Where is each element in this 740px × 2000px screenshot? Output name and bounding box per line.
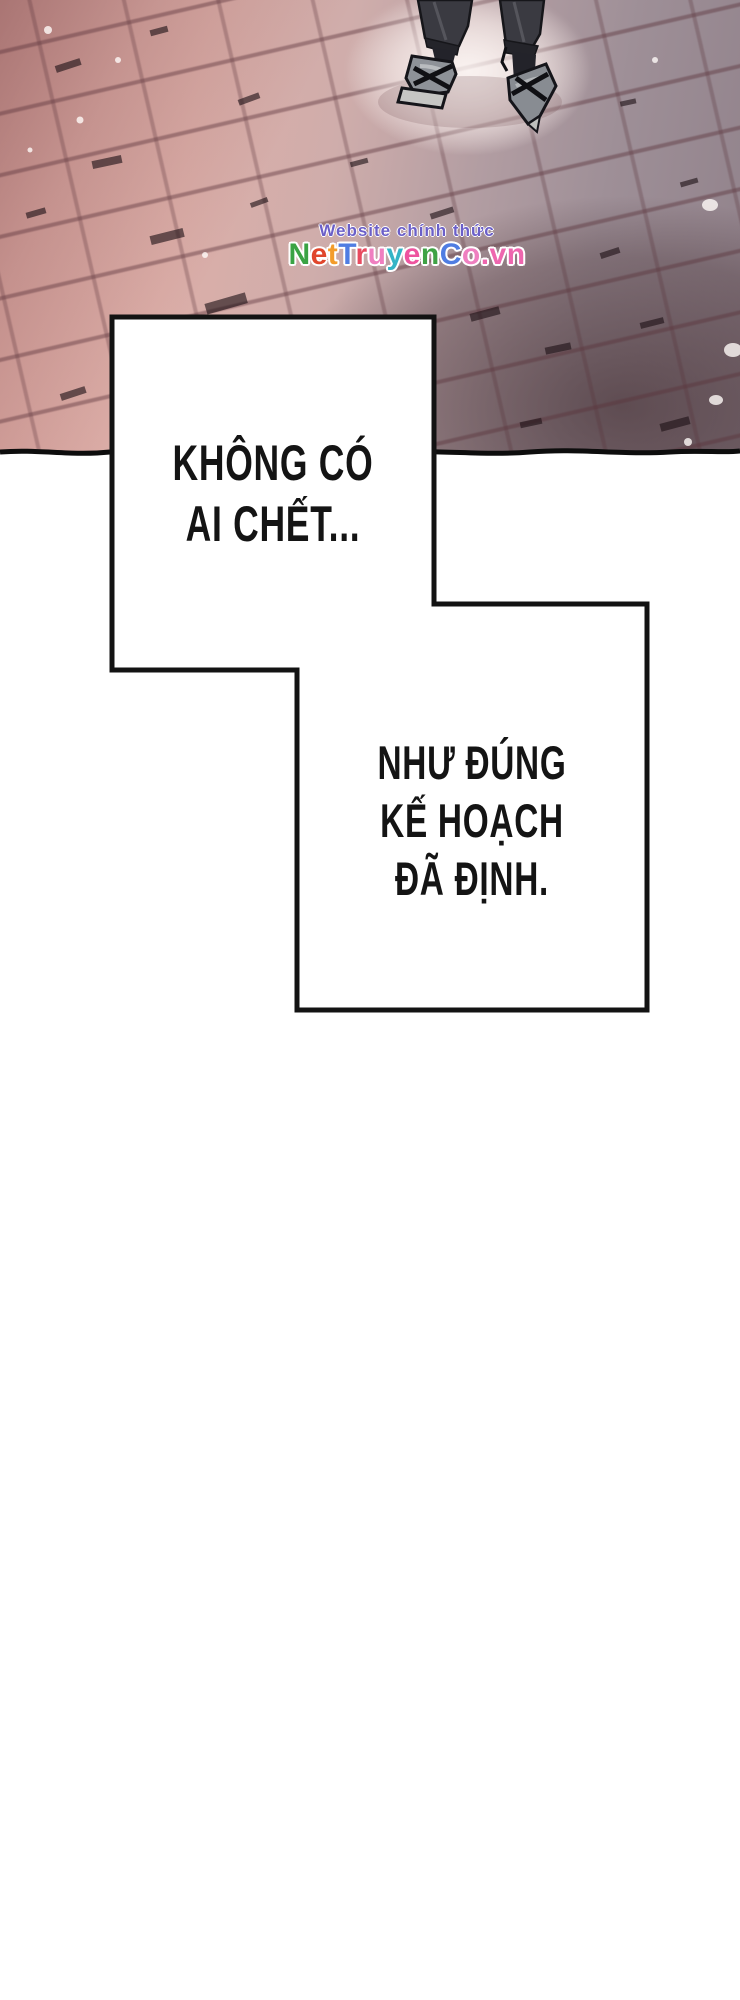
speech-line: ĐÃ ĐỊNH. bbox=[348, 850, 597, 908]
speech-line: KHÔNG CÓ bbox=[159, 433, 388, 494]
speech-line: NHƯ ĐÚNG bbox=[348, 734, 597, 792]
speech-bubble-1-text: KHÔNG CÓ AI CHẾT... bbox=[159, 433, 388, 555]
speech-line: KẾ HOẠCH bbox=[348, 792, 597, 850]
speech-bubble-2-text: NHƯ ĐÚNG KẾ HOẠCH ĐÃ ĐỊNH. bbox=[348, 734, 597, 908]
speech-line: AI CHẾT... bbox=[159, 494, 388, 555]
comic-page: Website chính thức NetTruyenCo.vn KHÔNG … bbox=[0, 0, 740, 2000]
